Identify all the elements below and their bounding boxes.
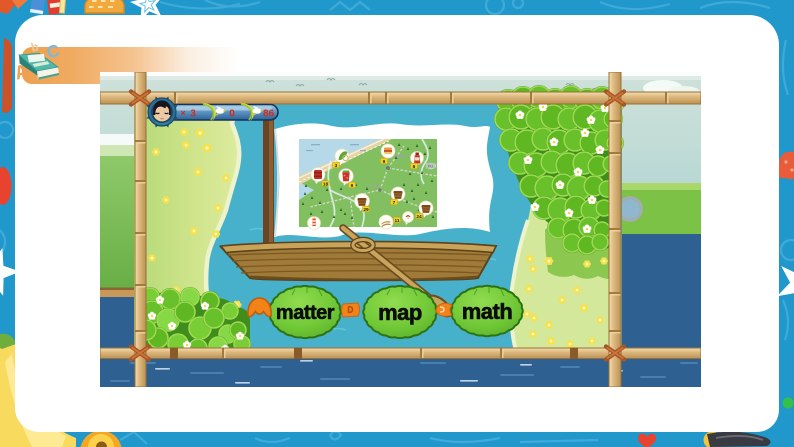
svg-text:3: 3 — [335, 163, 338, 169]
svg-text:11: 11 — [394, 218, 399, 224]
svg-text:3: 3 — [190, 108, 196, 119]
svg-text:matter: matter — [276, 302, 335, 324]
svg-text:24: 24 — [416, 214, 422, 220]
svg-text:29: 29 — [363, 207, 369, 213]
svg-text:0: 0 — [229, 108, 235, 119]
svg-text:7: 7 — [393, 200, 396, 206]
svg-text:PU: PU — [428, 163, 434, 168]
svg-text:math: math — [462, 299, 513, 324]
svg-text:9: 9 — [383, 159, 386, 165]
svg-text:map: map — [378, 300, 422, 325]
svg-text:9: 9 — [351, 183, 354, 189]
svg-text:×: × — [180, 108, 185, 118]
svg-text:18: 18 — [323, 181, 329, 187]
svg-text:6: 6 — [413, 164, 416, 170]
svg-text:86: 86 — [263, 108, 275, 119]
